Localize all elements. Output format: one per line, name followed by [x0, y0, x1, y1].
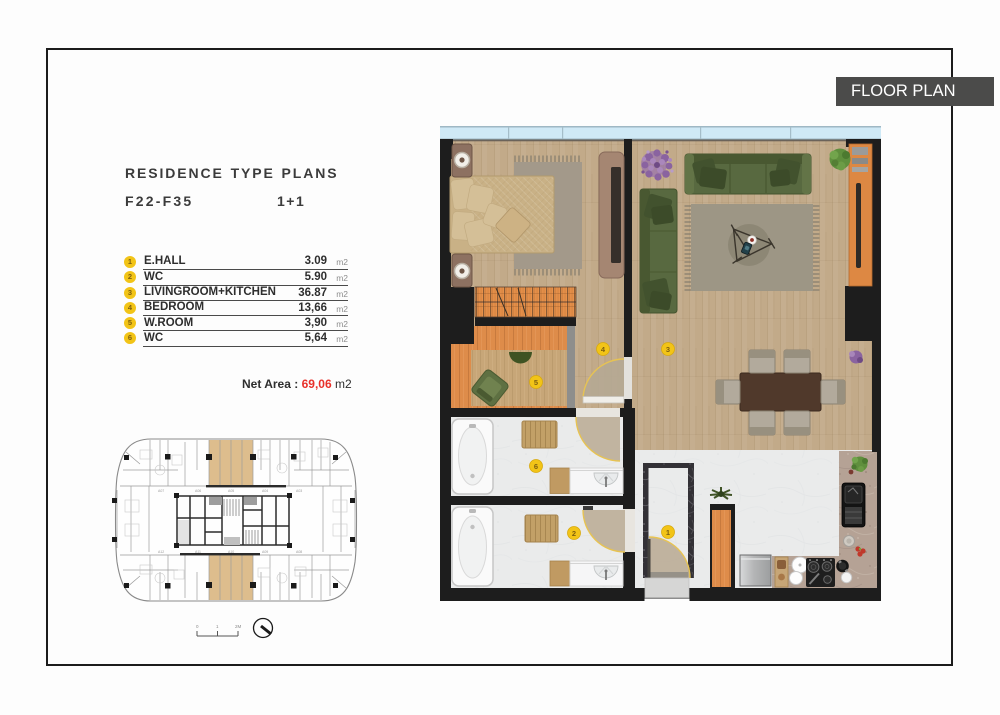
svg-text:A06: A06 — [195, 489, 201, 493]
svg-text:A07: A07 — [158, 489, 164, 493]
svg-text:A12: A12 — [158, 550, 164, 554]
svg-text:5: 5 — [534, 378, 538, 387]
svg-text:3: 3 — [666, 345, 670, 354]
svg-text:0: 0 — [196, 624, 199, 629]
svg-text:A05: A05 — [228, 489, 234, 493]
svg-text:A08: A08 — [296, 550, 302, 554]
svg-text:A09: A09 — [262, 550, 268, 554]
svg-text:6: 6 — [534, 462, 538, 471]
svg-text:A04: A04 — [262, 489, 268, 493]
svg-text:2M: 2M — [235, 624, 242, 629]
svg-text:A11: A11 — [195, 550, 201, 554]
svg-text:1: 1 — [666, 528, 670, 537]
svg-text:A03: A03 — [296, 489, 302, 493]
svg-text:1: 1 — [216, 624, 219, 629]
svg-text:2: 2 — [572, 529, 576, 538]
svg-text:A10: A10 — [228, 550, 234, 554]
